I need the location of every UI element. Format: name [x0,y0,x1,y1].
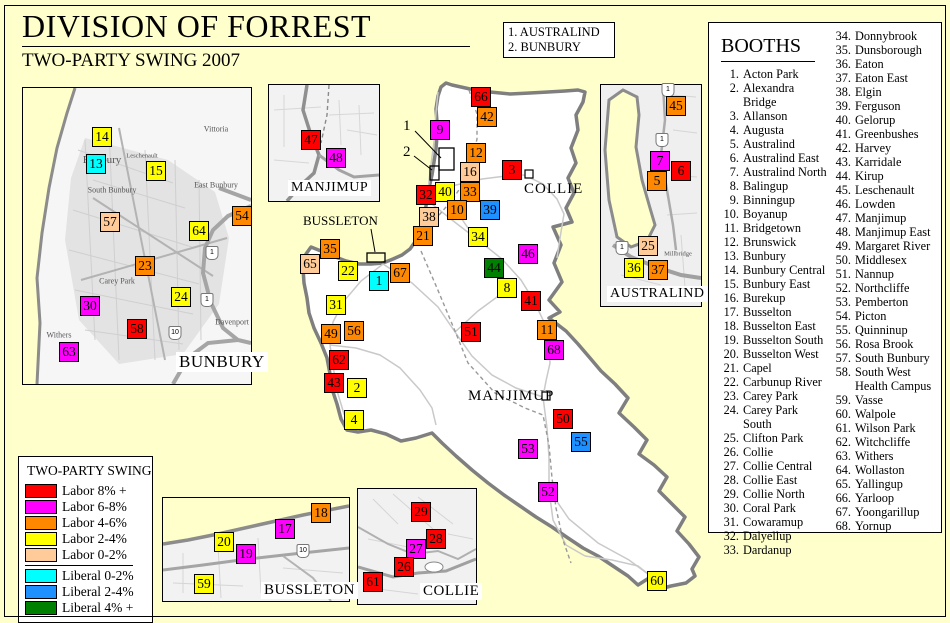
booth-marker-26: 26 [394,557,414,577]
booth-marker-21: 21 [413,226,433,246]
booth-marker-55: 55 [571,432,591,452]
booth-marker-20: 20 [214,532,234,552]
booth-marker-8: 8 [497,278,517,298]
booth-marker-23: 23 [135,256,155,276]
booth-marker-34: 34 [468,227,488,247]
booth-marker-18: 18 [311,503,331,523]
booth-marker-32: 32 [416,185,436,205]
booth-marker-50: 50 [553,409,573,429]
booth-marker-29: 29 [411,502,431,522]
booth-marker-15: 15 [146,161,166,181]
booth-marker-6: 6 [671,161,691,181]
booth-marker-33: 33 [460,182,480,202]
booth-marker-58: 58 [127,319,147,339]
booth-marker-3: 3 [502,160,522,180]
booth-marker-12: 12 [466,143,486,163]
booth-marker-46: 46 [518,244,538,264]
booth-marker-13: 13 [86,154,106,174]
booth-marker-30: 30 [80,296,100,316]
booth-marker-64: 64 [189,221,209,241]
booth-marker-27: 27 [406,539,426,559]
booth-marker-2: 2 [347,378,367,398]
booth-marker-4: 4 [344,410,364,430]
booth-marker-38: 38 [419,207,439,227]
booth-marker-67: 67 [390,263,410,283]
booth-marker-11: 11 [537,320,557,340]
booth-marker-47: 47 [301,130,321,150]
booth-marker-44: 44 [484,258,504,278]
booth-marker-28: 28 [426,529,446,549]
booth-marker-19: 19 [236,544,256,564]
booth-marker-22: 22 [338,261,358,281]
booth-marker-16: 16 [460,162,480,182]
booth-marker-5: 5 [647,171,667,191]
booth-marker-7: 7 [650,151,670,171]
booth-marker-54: 54 [232,206,252,226]
booth-marker-14: 14 [92,127,112,147]
booth-marker-68: 68 [544,340,564,360]
booth-marker-31: 31 [326,295,346,315]
booth-marker-9: 9 [430,120,450,140]
booth-marker-65: 65 [300,254,320,274]
booth-marker-53: 53 [518,439,538,459]
markers-layer: 6642912316324033103938213435652267146448… [0,0,950,621]
booth-marker-61: 61 [363,572,383,592]
booth-marker-40: 40 [435,182,455,202]
booth-marker-57: 57 [100,212,120,232]
booth-marker-41: 41 [521,291,541,311]
booth-marker-39: 39 [480,200,500,220]
booth-marker-10: 10 [447,200,467,220]
booth-marker-60: 60 [647,571,667,591]
booth-marker-52: 52 [538,482,558,502]
booth-marker-37: 37 [648,260,668,280]
booth-marker-51: 51 [461,322,481,342]
booth-marker-63: 63 [59,342,79,362]
booth-marker-42: 42 [477,107,497,127]
booth-marker-1: 1 [369,271,389,291]
booth-marker-59: 59 [194,574,214,594]
booth-marker-25: 25 [638,236,658,256]
booth-marker-49: 49 [321,324,341,344]
booth-marker-17: 17 [275,519,295,539]
booth-marker-35: 35 [320,239,340,259]
booth-marker-43: 43 [324,373,344,393]
booth-marker-45: 45 [666,96,686,116]
booth-marker-48: 48 [326,148,346,168]
booth-marker-24: 24 [171,287,191,307]
booth-marker-66: 66 [471,87,491,107]
booth-marker-36: 36 [624,258,644,278]
booth-marker-56: 56 [344,321,364,341]
booth-marker-62: 62 [329,350,349,370]
